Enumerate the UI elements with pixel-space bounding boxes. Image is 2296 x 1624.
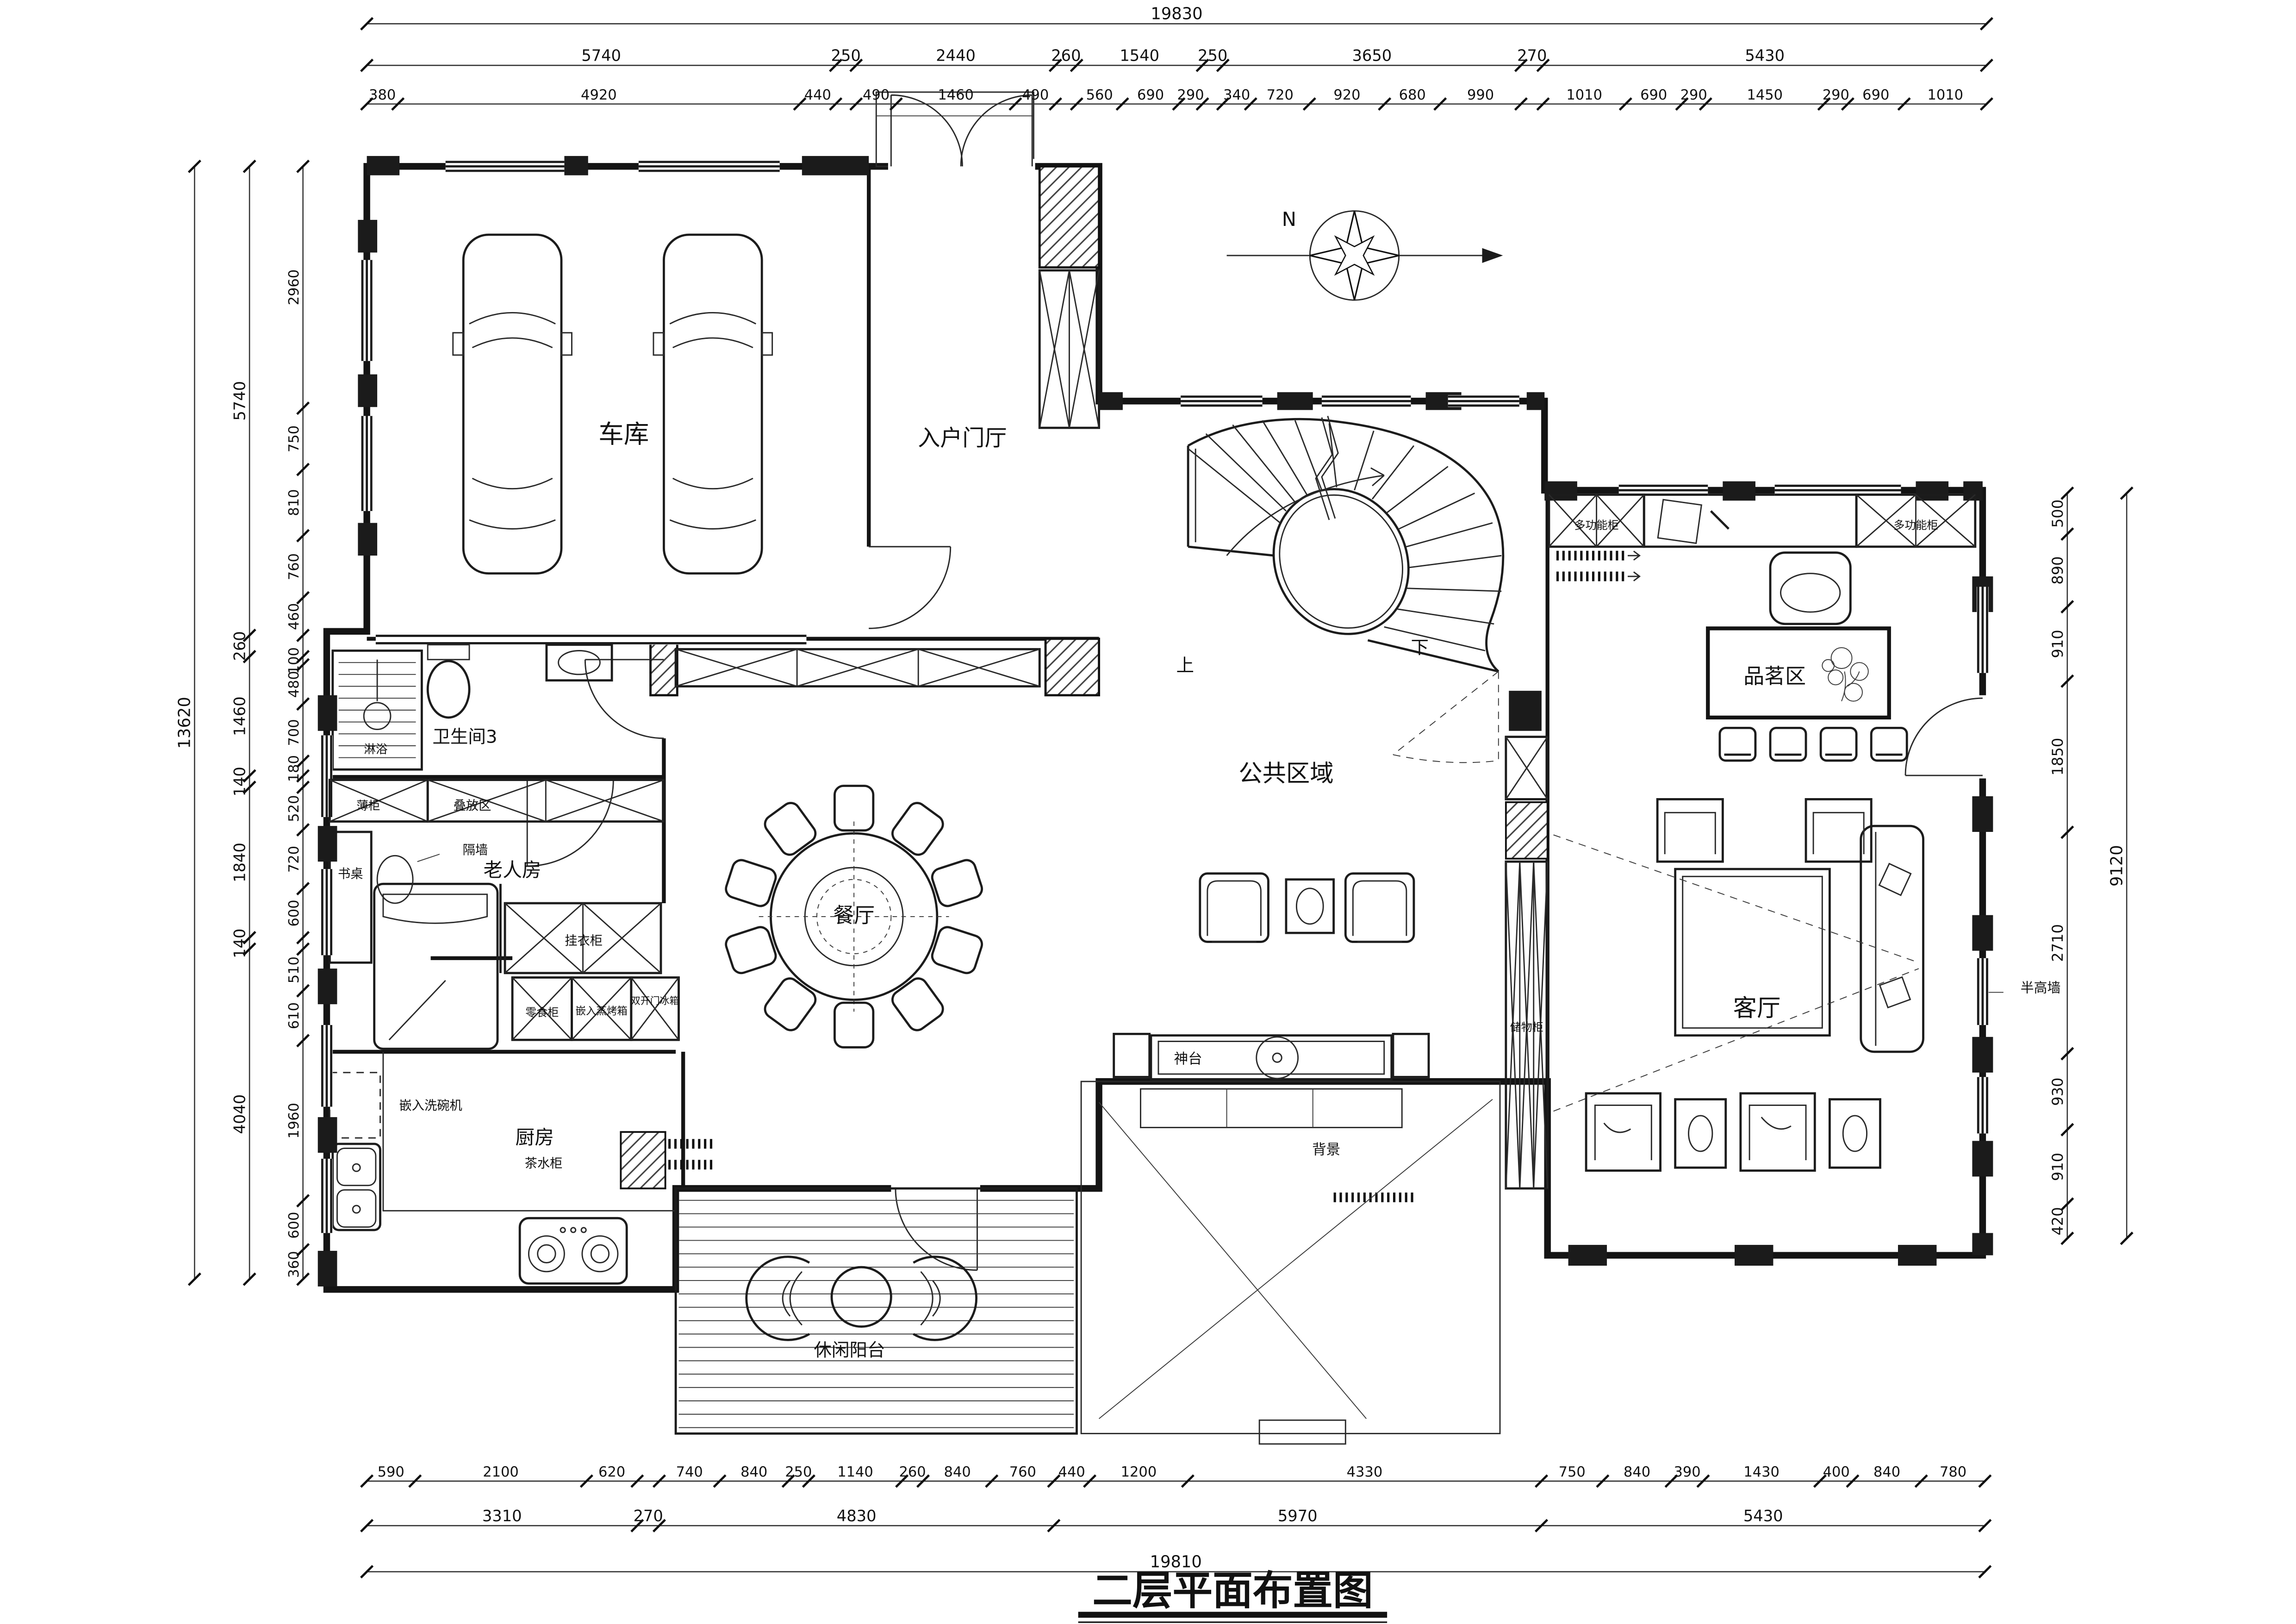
wall-column: [1972, 796, 1993, 832]
entry-door-right: [961, 95, 1032, 166]
wall-column: [1972, 1233, 1993, 1255]
dim-label: 780: [1940, 1464, 1966, 1480]
dim-label: 4330: [1347, 1464, 1383, 1480]
dim-label: 500: [2049, 500, 2066, 528]
wall-column: [1735, 1245, 1773, 1266]
dim-label: 520: [286, 795, 302, 822]
dim-chain-top-overall: 19830: [361, 5, 1992, 30]
pedestal: [1393, 1034, 1429, 1077]
dim-chain-left-overall: 13620: [175, 161, 200, 1285]
room-labels: 车库入户门厅公共区域品茗区客厅餐厅老人房卫生间3厨房休闲阳台淋浴书桌薄柜叠放区隔…: [338, 208, 2060, 1361]
wall-column: [1527, 392, 1545, 410]
wall-column: [367, 156, 400, 175]
living-room-furniture: [1334, 799, 2004, 1197]
tea-stools: [1720, 728, 1907, 761]
wall-column: [358, 523, 377, 556]
dim-label: 720: [286, 846, 302, 873]
dim-label: 1140: [837, 1464, 873, 1480]
label-stairs-down: 下: [1411, 637, 1429, 658]
label-ann-partition: 隔墙: [463, 843, 488, 857]
dim-label: 440: [804, 87, 831, 103]
dim-chain-bottom-major: 3310270483059705430: [361, 1507, 1991, 1531]
pillow: [1879, 864, 1910, 895]
dim-label: 1850: [2049, 738, 2066, 776]
wall-column: [1916, 481, 1949, 501]
garage-cars: [453, 235, 772, 574]
dim-label: 750: [286, 425, 302, 452]
label-ann-storage: 储物柜: [1510, 1021, 1543, 1034]
wall-column: [318, 695, 337, 731]
dim-label: 930: [2049, 1078, 2066, 1106]
coil-symbol: [1556, 556, 1625, 576]
wall-column: [1972, 1037, 1993, 1073]
label-ann-steam-oven: 嵌入蒸烤箱: [575, 1006, 627, 1018]
wall-column: [564, 156, 588, 175]
dim-chain-left-minor: 2960750810760460100480700180520720600510…: [286, 161, 309, 1285]
kitchen-sink: [333, 1144, 380, 1230]
entry-door-left: [891, 95, 962, 166]
public-area-furniture: [1114, 874, 1429, 1128]
dim-label: 400: [1823, 1464, 1850, 1480]
dim-label: 3650: [1352, 47, 1392, 65]
label-ann-tea-cabinet: 茶水柜: [525, 1156, 563, 1171]
wall-column: [802, 156, 869, 175]
dim-label: 490: [863, 87, 890, 103]
dim-label: 890: [2049, 556, 2066, 585]
dim-label: 270: [633, 1507, 663, 1525]
dim-label: 1840: [230, 843, 249, 882]
label-compass-north: N: [1282, 208, 1296, 231]
pillow: [1880, 977, 1910, 1008]
tea-cabinet-column: [621, 1132, 665, 1188]
dim-label: 750: [1559, 1464, 1586, 1480]
dim-label: 3310: [482, 1507, 522, 1525]
dim-label: 340: [1223, 87, 1250, 103]
patio: [1081, 1081, 1500, 1444]
wall-column: [1972, 1141, 1993, 1176]
pedestal: [1114, 1034, 1150, 1077]
hatched-column: [651, 639, 678, 695]
floor-plan-canvas: 1983057402502440260154025036502705430380…: [0, 0, 2296, 1624]
partition-leader: [417, 854, 440, 862]
dim-label: 260: [230, 631, 249, 661]
tea-area-furniture: [1556, 495, 1907, 761]
living-entry-door: [1905, 698, 1983, 775]
label-stairs-up: 上: [1176, 655, 1194, 676]
label-ann-dishwasher: 嵌入洗碗机: [399, 1099, 462, 1113]
wall-column: [1972, 915, 1993, 951]
wall-column: [318, 826, 337, 862]
dim-label: 480: [286, 671, 302, 698]
dim-label: 290: [1823, 87, 1849, 103]
dim-label: 460: [286, 603, 302, 630]
dim-label: 990: [1467, 87, 1494, 103]
side-table: [1286, 880, 1334, 933]
wall-column: [318, 1117, 337, 1153]
wall-column: [1963, 481, 1983, 501]
dim-label: 9120: [2108, 845, 2127, 887]
dim-label: 690: [1862, 87, 1889, 103]
dim-label: 840: [944, 1464, 971, 1480]
dim-label: 1540: [1120, 47, 1159, 65]
dim-label: 4920: [581, 87, 617, 103]
dim-label: 840: [1624, 1464, 1650, 1480]
dim-label: 610: [286, 1002, 302, 1029]
dim-label: 5740: [230, 381, 249, 421]
dim-chain-left-major: 5740260146014018401404040: [230, 161, 255, 1285]
dim-label: 1200: [1121, 1464, 1157, 1480]
dining-chair: [724, 925, 778, 975]
dim-label: 2960: [286, 269, 302, 306]
wall-column: [318, 1251, 337, 1287]
label-room-kitchen: 厨房: [516, 1126, 554, 1149]
dim-label: 250: [1198, 47, 1227, 65]
label-ann-multi-cabinet-left: 多功能柜: [1574, 518, 1618, 531]
label-room-entry-foyer: 入户门厅: [918, 425, 1007, 451]
dim-label: 270: [1517, 47, 1547, 65]
dining-chair: [724, 858, 778, 908]
dim-label: 13620: [175, 697, 194, 749]
desk-chair: [377, 856, 413, 903]
wall-column: [358, 220, 377, 253]
sink-basin: [559, 651, 600, 675]
dim-label: 840: [740, 1464, 767, 1480]
dim-label: 690: [1640, 87, 1667, 103]
dim-label: 390: [1674, 1464, 1700, 1480]
dim-chain-right-minor: 50089091018502710930910420: [2049, 487, 2073, 1244]
dim-label: 5970: [1278, 1507, 1318, 1525]
tea-chair: [1770, 553, 1850, 624]
dimension-chains: 1983057402502440260154025036502705430380…: [175, 5, 2133, 1578]
patio-step: [1259, 1420, 1345, 1444]
dim-label: 1460: [230, 696, 249, 736]
dim-label: 740: [676, 1464, 703, 1480]
wall-column: [1568, 1245, 1607, 1266]
dim-label: 840: [1873, 1464, 1900, 1480]
dim-chain-top-major: 57402502440260154025036502705430: [361, 47, 1992, 71]
label-ann-half-wall: 半高墙: [2021, 980, 2061, 996]
dim-label: 100: [286, 647, 302, 674]
dim-label: 4040: [230, 1094, 249, 1134]
dim-label: 5740: [581, 47, 621, 65]
dim-label: 1450: [1747, 87, 1783, 103]
dim-label: 440: [1058, 1464, 1085, 1480]
balcony-deck: [676, 1188, 1076, 1433]
dim-label: 620: [598, 1464, 625, 1480]
car-right: [653, 235, 772, 574]
equipment-box: [1509, 691, 1542, 731]
hatched-column: [1045, 639, 1099, 695]
label-ann-stack-zone: 叠放区: [454, 799, 492, 813]
label-ann-desk: 书桌: [338, 867, 363, 881]
wall-column: [358, 375, 377, 407]
dining-chair: [761, 975, 819, 1034]
wall-column: [1277, 392, 1313, 410]
toilet: [428, 661, 469, 718]
label-room-tea-area: 品茗区: [1743, 664, 1806, 688]
dim-label: 1010: [1566, 87, 1602, 103]
dim-label: 420: [2049, 1207, 2066, 1235]
car-left: [453, 235, 572, 574]
wall-column: [1723, 481, 1755, 501]
dim-label: 600: [286, 899, 302, 926]
dim-label: 910: [2049, 1153, 2066, 1181]
title-block: 二层平面布置图: [1078, 1568, 1387, 1623]
balcony-chair: [747, 1257, 809, 1340]
bed: [374, 884, 498, 1049]
label-room-bath3: 卫生间3: [432, 726, 497, 747]
hatched-column: [1506, 802, 1548, 859]
dim-label: 4830: [837, 1507, 877, 1525]
elder-room-furniture: [330, 832, 500, 1049]
dim-label: 250: [785, 1464, 812, 1480]
dim-label: 680: [1399, 87, 1426, 103]
side-table: [1675, 1099, 1726, 1168]
porch-column: [1039, 166, 1099, 267]
dim-label: 1430: [1743, 1464, 1780, 1480]
dim-label: 290: [1177, 87, 1204, 103]
dim-label: 490: [1022, 87, 1049, 103]
tea-counter: [1644, 495, 1856, 547]
dim-label: 5430: [1745, 47, 1785, 65]
dim-chain-top-minor: 3804920440490146049056069029034072092068…: [361, 87, 1992, 110]
dim-label: 760: [286, 553, 302, 580]
bonsai: [1822, 648, 1868, 701]
wall-column: [1099, 392, 1123, 410]
label-room-public-area: 公共区域: [1238, 760, 1333, 787]
dim-label: 810: [286, 489, 302, 516]
dim-label: 720: [1267, 87, 1294, 103]
dim-label: 690: [1137, 87, 1164, 103]
label-ann-altar: 神台: [1174, 1051, 1202, 1068]
side-table: [1829, 1099, 1880, 1168]
toilet-tank: [428, 645, 469, 660]
dim-label: 2100: [483, 1464, 519, 1480]
dim-chain-right-overall: 9120: [2108, 487, 2133, 1244]
dining-chair: [930, 925, 984, 975]
structure-details: [318, 156, 1993, 1287]
drawing-title: 二层平面布置图: [1092, 1568, 1373, 1614]
dining-chair: [761, 800, 819, 858]
spiral-staircase: [1188, 416, 1503, 762]
backdrop-platform: [1140, 1089, 1402, 1127]
coil-symbol: [668, 1144, 716, 1165]
garage-foyer-door: [869, 547, 950, 628]
dim-label: 920: [1333, 87, 1360, 103]
dim-chain-bottom-minor: 5902100620740840250114026084076044012004…: [361, 1464, 1991, 1487]
dim-label: 590: [378, 1464, 404, 1480]
wall-column: [1898, 1245, 1936, 1266]
label-ann-wardrobe: 挂衣柜: [565, 934, 603, 948]
compass-rose: [1227, 211, 1503, 300]
dim-label: 2710: [2049, 924, 2066, 962]
dim-label: 560: [1086, 87, 1113, 103]
label-ann-thin-cabinet: 薄柜: [356, 799, 380, 813]
dim-label: 760: [1009, 1464, 1036, 1480]
dining-chair: [889, 975, 946, 1034]
armchair: [1657, 799, 1723, 862]
label-ann-fridge: 双开门冰箱: [631, 995, 679, 1006]
dim-label: 19830: [1151, 5, 1202, 24]
dim-label: 260: [899, 1464, 926, 1480]
dim-label: 2440: [936, 47, 976, 65]
dim-label: 290: [1680, 87, 1707, 103]
dim-label: 380: [369, 87, 396, 103]
dim-label: 600: [286, 1212, 302, 1239]
dim-label: 1460: [938, 87, 974, 103]
dining-chair: [930, 858, 984, 908]
label-ann-snack-cabinet: 零食柜: [525, 1006, 559, 1019]
label-room-balcony: 休闲阳台: [814, 1340, 885, 1361]
dining-chair: [889, 800, 946, 858]
label-ann-shower: 淋浴: [364, 743, 388, 756]
dim-label: 910: [2049, 630, 2066, 658]
dim-label: 700: [286, 719, 302, 746]
label-room-elder: 老人房: [484, 858, 541, 881]
dim-label: 260: [1051, 47, 1081, 65]
dim-label: 1960: [286, 1103, 302, 1139]
label-ann-backdrop: 背景: [1312, 1142, 1340, 1158]
label-room-dining: 餐厅: [833, 903, 875, 928]
label-room-garage: 车库: [598, 419, 649, 449]
label-ann-multi-cabinet-right: 多功能柜: [1893, 518, 1938, 531]
dishwasher: [330, 1073, 380, 1138]
dim-label: 250: [831, 47, 861, 65]
elder-room-door: [527, 780, 613, 866]
wall-column: [318, 968, 337, 1004]
dim-label: 5430: [1743, 1507, 1783, 1525]
balcony-table: [832, 1267, 891, 1326]
dim-label: 360: [286, 1251, 302, 1278]
dim-label: 1010: [1928, 87, 1964, 103]
dim-label: 510: [286, 956, 302, 983]
label-room-living: 客厅: [1733, 994, 1781, 1022]
